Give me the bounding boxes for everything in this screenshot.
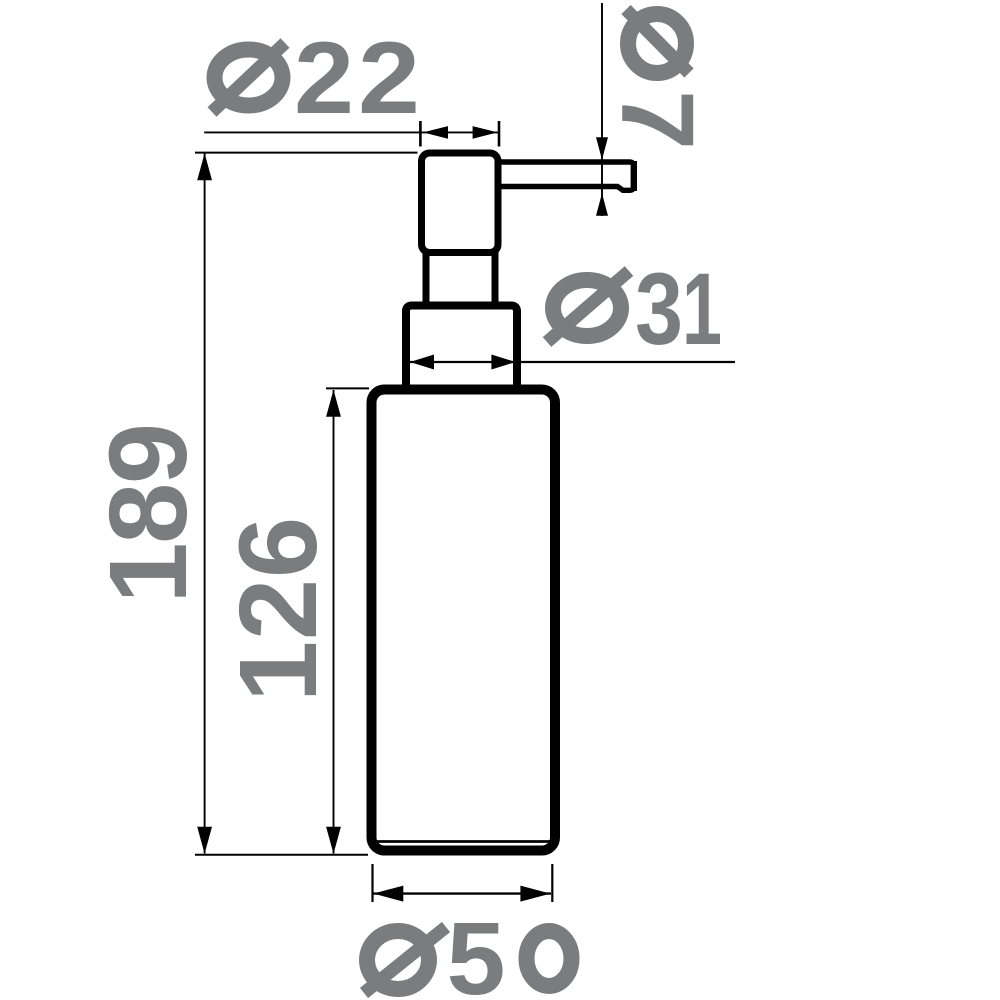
svg-text:126: 126 [217,516,340,702]
svg-text:5: 5 [447,901,506,1000]
svg-text:2: 2 [294,21,354,135]
svg-text:1: 1 [682,252,722,366]
svg-text:3: 3 [635,252,683,366]
svg-text:2: 2 [358,21,420,135]
svg-text:189: 189 [87,424,210,603]
svg-text:7: 7 [600,90,715,150]
